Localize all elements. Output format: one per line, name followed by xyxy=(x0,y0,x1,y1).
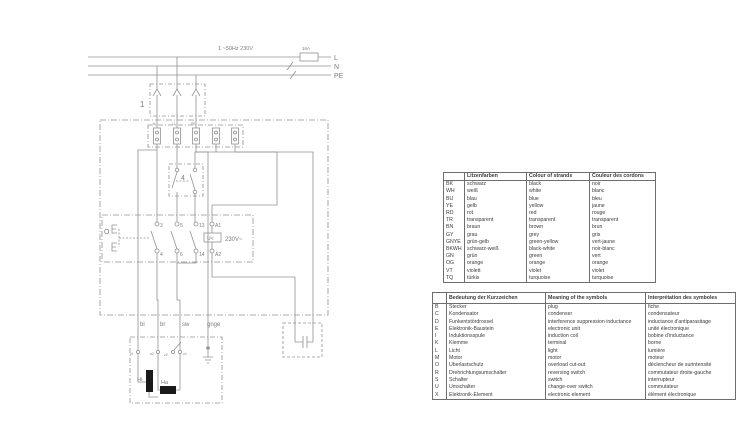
table-cell: R xyxy=(433,370,447,377)
table-row: GNgrüngreenvert xyxy=(444,253,656,260)
table-cell: OG xyxy=(444,260,465,267)
capacitor-box xyxy=(283,323,322,357)
line-break-marks xyxy=(287,62,296,79)
coil-voltage-label: 230V~ xyxy=(225,237,243,243)
table-cell: BK xyxy=(444,181,465,189)
contact-3-label: 3 xyxy=(160,223,163,229)
table-cell: Elektronik-Element xyxy=(447,392,546,400)
table-cell: GY xyxy=(444,232,465,239)
table-cell: Induktionsspule xyxy=(447,333,546,340)
fuse-label: 16A xyxy=(302,46,310,51)
wire-label-bl: bl xyxy=(140,322,145,328)
table-cell: switch xyxy=(546,377,646,384)
table-cell: vert-jaune xyxy=(590,239,656,246)
element-ha-label: Ha xyxy=(161,380,169,386)
table-cell: interrupteur xyxy=(646,377,736,384)
table-row: BUblaubluebleu xyxy=(444,196,656,203)
contact-a1-label: A1 xyxy=(215,223,221,229)
rating-label: 1 ~50Hz 230V xyxy=(218,46,253,52)
capacitor-symbol xyxy=(303,336,307,348)
element-ha xyxy=(160,386,176,394)
table-cell: overload cut-out xyxy=(546,362,646,369)
table-cell: O xyxy=(433,362,447,369)
table-cell: condensateur xyxy=(646,311,736,318)
motor-terminal-u1: u1 xyxy=(183,352,187,356)
table-row: GNYEgrün-gelbgreen-yellowvert-jaune xyxy=(444,239,656,246)
line-l-label: L xyxy=(334,55,338,62)
table-cell: weiß xyxy=(465,188,527,195)
table-cell: black xyxy=(527,181,590,189)
table-cell: braun xyxy=(465,224,527,231)
main-enclosure-box xyxy=(100,120,328,315)
table-cell: violet xyxy=(590,268,656,275)
table-row: MMotormotormoteur xyxy=(433,355,736,362)
table-row: KKlemmeterminalborne xyxy=(433,340,736,347)
contact-13-label: 13 xyxy=(199,223,205,229)
table-cell: commutateur droite-gauche xyxy=(646,370,736,377)
coil-label: U< xyxy=(207,236,214,242)
table-cell: green-yellow xyxy=(527,239,590,246)
table-cell: brown xyxy=(527,224,590,231)
table-cell: bleu xyxy=(590,196,656,203)
table-cell: black-white xyxy=(527,246,590,253)
table-cell: gris xyxy=(590,232,656,239)
table-cell: blanc xyxy=(590,188,656,195)
table-cell: grey xyxy=(527,232,590,239)
table-row: BKschwarzblacknoir xyxy=(444,181,656,189)
table-cell: Funkentstördrossel xyxy=(447,319,546,326)
table-cell: GNYE xyxy=(444,239,465,246)
table-cell: unité électronique xyxy=(646,326,736,333)
table-row: LLichtlightlumière xyxy=(433,348,736,355)
switch-box-label: 4 xyxy=(181,175,185,182)
actuator-label: O xyxy=(104,229,110,236)
motor-terminal-z1: z1 xyxy=(130,352,134,356)
table-cell: induction coil xyxy=(546,333,646,340)
table-row: EElektronik-Bausteinelectronic unitunité… xyxy=(433,326,736,333)
table-cell: Klemme xyxy=(447,340,546,347)
table-row: IInduktionsspuleinduction coilbobine d'i… xyxy=(433,333,736,340)
table-cell: bobine d'inductance xyxy=(646,333,736,340)
table-cell: M xyxy=(433,355,447,362)
table-cell: jaune xyxy=(590,203,656,210)
table-cell: red xyxy=(527,210,590,217)
table-cell: white xyxy=(527,188,590,195)
plug-contact-arrows xyxy=(153,89,200,96)
table-cell: BN xyxy=(444,224,465,231)
table-row: OÜberlastschutzoverload cut-outdéclenche… xyxy=(433,362,736,369)
contact-5-label: 5 xyxy=(180,223,183,229)
table-cell: orange xyxy=(465,260,527,267)
table-cell: B xyxy=(433,304,447,312)
terminal-label-2: L1 xyxy=(172,122,176,126)
table-cell: GN xyxy=(444,253,465,260)
wire-label-br: br xyxy=(160,322,165,328)
table-cell: C xyxy=(433,311,447,318)
table-cell: moteur xyxy=(646,355,736,362)
table-cell: motor xyxy=(546,355,646,362)
table-cell: U xyxy=(433,384,447,391)
table-cell: orange xyxy=(527,260,590,267)
table-cell: turquoise xyxy=(590,275,656,283)
column-header: Interprétation des symboles xyxy=(646,293,736,304)
table-cell: schwarz-weiß xyxy=(465,246,527,253)
table-cell: Kondensator xyxy=(447,311,546,318)
table-cell: noir xyxy=(590,181,656,189)
table-row: UUmschalterchange-over switchcommutateur xyxy=(433,384,736,391)
table-cell: commutateur xyxy=(646,384,736,391)
table-cell: Drehrichtungsumschalter xyxy=(447,370,546,377)
contact-a2-label: A2 xyxy=(215,252,221,258)
column-header xyxy=(433,293,447,304)
line-n-label: N xyxy=(334,64,339,71)
terminal-label-3: PE xyxy=(191,122,195,126)
supply-drops xyxy=(157,57,196,128)
motor-terminals xyxy=(136,342,181,354)
column-header: Couleur des cordons xyxy=(590,173,656,181)
contact-14-label: 14 xyxy=(199,252,205,258)
table-cell: transparent xyxy=(465,217,527,224)
column-header xyxy=(444,173,465,181)
table-cell: K xyxy=(433,340,447,347)
column-header: Colour of strands xyxy=(527,173,590,181)
table-row: RDrotredrouge xyxy=(444,210,656,217)
table-row: CKondensatorcondensercondensateur xyxy=(433,311,736,318)
table-cell: turquoise xyxy=(527,275,590,283)
wire-label-sw: sw xyxy=(182,322,190,328)
table-cell: Umschalter xyxy=(447,384,546,391)
table-row: BKWHschwarz-weißblack-whitenoir-blanc xyxy=(444,246,656,253)
table-cell: D xyxy=(433,319,447,326)
element-hi xyxy=(146,370,153,392)
table-row: RDrehrichtungsumschalterreversing switch… xyxy=(433,370,736,377)
table-row: GYgraugreygris xyxy=(444,232,656,239)
internal-wires xyxy=(138,144,313,350)
table-cell: Motor xyxy=(447,355,546,362)
table-cell: change-over switch xyxy=(546,384,646,391)
table-cell: VT xyxy=(444,268,465,275)
table-cell: déclencheur de surintensité xyxy=(646,362,736,369)
circuit-diagram: 1 ~50Hz 230V 16A L N PE 1 N L1 PE 4 O 3 … xyxy=(0,0,440,442)
table-cell: yellow xyxy=(527,203,590,210)
contact-6-label: 6 xyxy=(180,252,183,258)
table-cell: TQ xyxy=(444,275,465,283)
table-cell: schwarz xyxy=(465,181,527,189)
manual-page: 1 ~50Hz 230V 16A L N PE 1 N L1 PE 4 O 3 … xyxy=(0,0,750,442)
ground-symbol xyxy=(203,347,213,363)
table-cell: green xyxy=(527,253,590,260)
table-row: SSchalterswitchinterrupteur xyxy=(433,377,736,384)
table-cell: light xyxy=(546,348,646,355)
wire-color-table: LitzenfarbenColour of strandsCouleur des… xyxy=(443,172,656,283)
table-cell: gelb xyxy=(465,203,527,210)
table-cell: plug xyxy=(546,304,646,312)
table-row: OGorangeorangeorange xyxy=(444,260,656,267)
table-cell: inductance d'antiparasitage xyxy=(646,319,736,326)
table-cell: WH xyxy=(444,188,465,195)
table-cell: transparent xyxy=(590,217,656,224)
table-cell: I xyxy=(433,333,447,340)
motor-terminal-z2: z2 xyxy=(164,353,168,357)
line-pe-label: PE xyxy=(334,73,344,80)
table-cell: noir-blanc xyxy=(590,246,656,253)
motor-terminal-u2: u2 xyxy=(150,352,154,356)
main-contacts xyxy=(151,222,198,253)
table-cell: brun xyxy=(590,224,656,231)
table-cell: borne xyxy=(646,340,736,347)
table-cell: Schalter xyxy=(447,377,546,384)
table-cell: RD xyxy=(444,210,465,217)
table-cell: interference suppression inductance xyxy=(546,319,646,326)
contact-4-label: 4 xyxy=(160,252,163,258)
table-cell: violet xyxy=(527,268,590,275)
plug-box-label: 1 xyxy=(140,100,145,109)
element-hi-label: Hi xyxy=(137,377,142,383)
table-cell: BU xyxy=(444,196,465,203)
table-row: BNbraunbrownbrun xyxy=(444,224,656,231)
table-cell: condenser xyxy=(546,311,646,318)
table-cell: fiche xyxy=(646,304,736,312)
table-row: DFunkentstördrosselinterference suppress… xyxy=(433,319,736,326)
table-cell: türkis xyxy=(465,275,527,283)
table-row: XElektronik-Elementelectronic elementélé… xyxy=(433,392,736,400)
column-header: Bedeutung der Kurzzeichen xyxy=(447,293,546,304)
table-cell: lumière xyxy=(646,348,736,355)
table-cell: X xyxy=(433,392,447,400)
table-cell: Elektronik-Baustein xyxy=(447,326,546,333)
symbol-legend-table: Bedeutung der KurzzeichenMeaning of the … xyxy=(432,292,736,400)
table-cell: orange xyxy=(590,260,656,267)
table-cell: rot xyxy=(465,210,527,217)
table-cell: YE xyxy=(444,203,465,210)
table-row: TQtürkisturquoiseturquoise xyxy=(444,275,656,283)
table-cell: blau xyxy=(465,196,527,203)
table-cell: electronic element xyxy=(546,392,646,400)
table-row: TRtransparenttransparenttransparent xyxy=(444,217,656,224)
table-cell: blue xyxy=(527,196,590,203)
table-row: YEgelbyellowjaune xyxy=(444,203,656,210)
terminal-symbols xyxy=(154,128,239,144)
table-cell: transparent xyxy=(527,217,590,224)
plug-box xyxy=(150,84,205,116)
fuse-symbol xyxy=(300,53,318,61)
table-cell: Überlastschutz xyxy=(447,362,546,369)
wire-label-gnge: gnge xyxy=(207,322,221,328)
actuator-symbol xyxy=(112,225,150,251)
table-cell: grün-gelb xyxy=(465,239,527,246)
table-cell: TR xyxy=(444,217,465,224)
table-row: WHweißwhiteblanc xyxy=(444,188,656,195)
table-row: BSteckerplugfiche xyxy=(433,304,736,312)
table-cell: Stecker xyxy=(447,304,546,312)
table-cell: vert xyxy=(590,253,656,260)
table-row: VTviolettvioletviolet xyxy=(444,268,656,275)
table-cell: electronic unit xyxy=(546,326,646,333)
table-cell: violett xyxy=(465,268,527,275)
table-cell: élément électronique xyxy=(646,392,736,400)
table-cell: grün xyxy=(465,253,527,260)
column-header: Meaning of the symbols xyxy=(546,293,646,304)
table-cell: terminal xyxy=(546,340,646,347)
table-cell: BKWH xyxy=(444,246,465,253)
table-cell: reversing switch xyxy=(546,370,646,377)
table-cell: S xyxy=(433,377,447,384)
table-cell: grau xyxy=(465,232,527,239)
column-header: Litzenfarben xyxy=(465,173,527,181)
table-cell: L xyxy=(433,348,447,355)
table-cell: Licht xyxy=(447,348,546,355)
table-cell: rouge xyxy=(590,210,656,217)
table-cell: E xyxy=(433,326,447,333)
